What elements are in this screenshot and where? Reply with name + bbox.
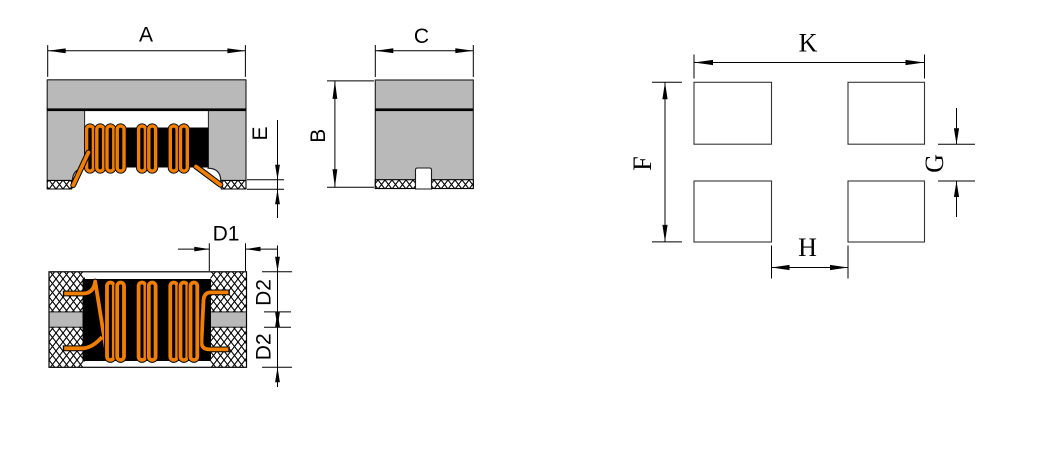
svg-text:D1: D1	[213, 223, 240, 246]
svg-text:A: A	[139, 24, 153, 47]
svg-text:G: G	[920, 154, 949, 173]
svg-text:C: C	[414, 25, 429, 48]
svg-text:F: F	[628, 156, 657, 170]
svg-text:D2: D2	[252, 333, 275, 360]
svg-text:B: B	[307, 129, 330, 143]
svg-text:K: K	[799, 29, 818, 58]
svg-text:E: E	[249, 126, 272, 140]
svg-text:H: H	[798, 233, 817, 262]
svg-text:D2: D2	[252, 279, 275, 306]
